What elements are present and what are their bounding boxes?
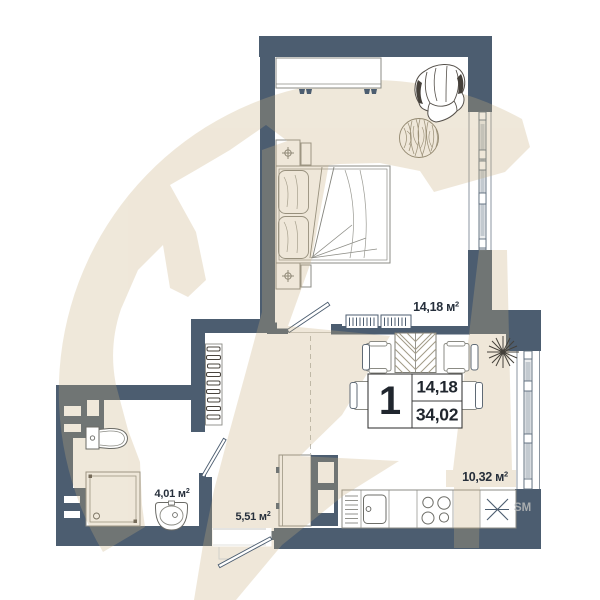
svg-text:10,32 м2: 10,32 м2	[462, 470, 508, 485]
svg-text:SM: SM	[514, 502, 531, 514]
svg-text:5,51 м2: 5,51 м2	[235, 511, 270, 523]
svg-text:1: 1	[379, 379, 401, 423]
svg-text:14,18: 14,18	[416, 378, 457, 397]
svg-text:4,01 м2: 4,01 м2	[154, 488, 189, 500]
svg-text:14,18 м2: 14,18 м2	[413, 300, 459, 315]
svg-text:34,02: 34,02	[416, 405, 459, 425]
